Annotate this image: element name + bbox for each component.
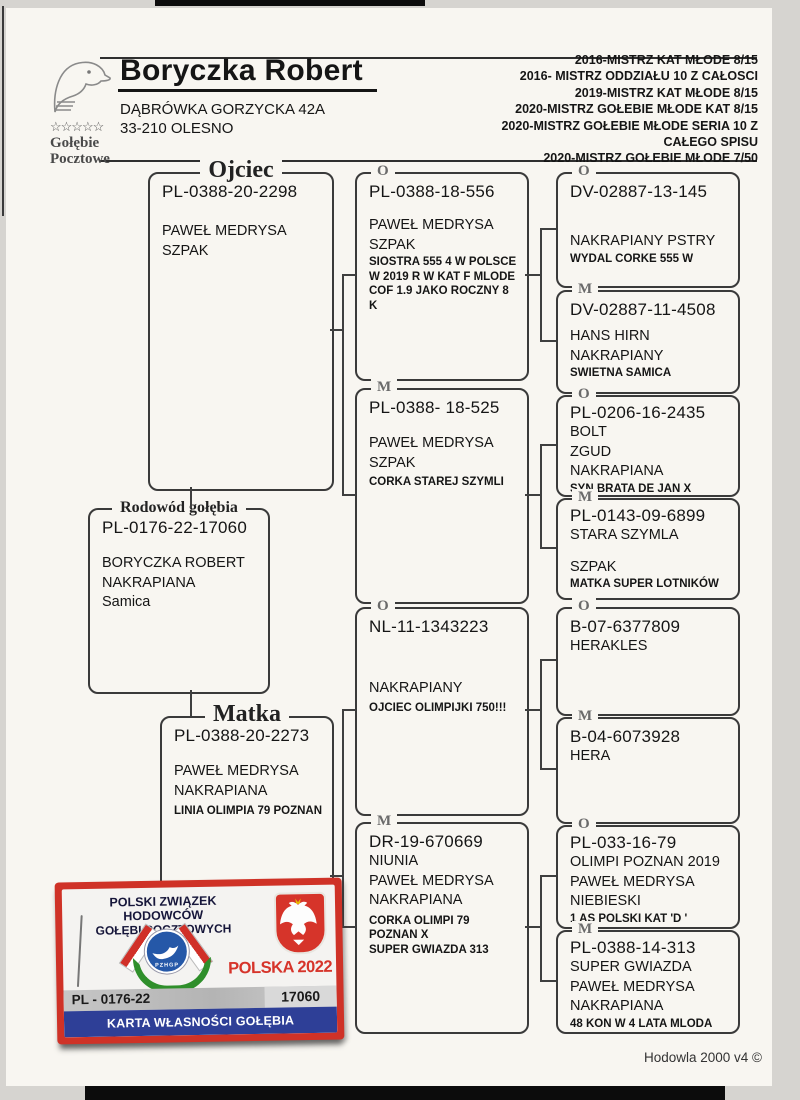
pedigree-box-gen3-6: M B-04-6073928 HERA [556,717,740,824]
dam-label: M [572,281,598,298]
achievement-line: 2016-MISTRZ KAT MŁODE 8/15 [501,52,758,68]
bird-name-line: NIEBIESKI [570,892,730,912]
bird-note-line: LINIA OLIMPIA 79 POZNAN [174,804,324,819]
bird-note-line: OJCIEC OLIMPIJKI 750!!! [369,701,519,716]
bird-name-line: PAWEŁ MEDRYSA [570,978,730,998]
bird-name-line: NAKRAPIANA [570,462,730,482]
bird-name-line: Samica [102,593,260,613]
pzhgp-emblem-icon: PZHGP [117,923,214,989]
connector-line [540,980,556,982]
club-logo: ☆☆☆☆☆ Gołębie Pocztowe [48,58,126,167]
sire-label: O [371,163,395,180]
connector-line [525,926,540,928]
pedigree-box-gen2-4: M DR-19-670669 NIUNIA PAWEŁ MEDRYSA NAKR… [355,822,529,1034]
bird-name-line: PAWEŁ MEDRYSA [369,216,519,236]
connector-line [540,444,542,547]
bird-note-line: SIOSTRA 555 4 W POLSCE [369,255,519,270]
connector-line [525,709,540,711]
connector-line [540,875,556,877]
logo-word-1: Gołębie [50,135,126,151]
bird-name-line: OLIMPI POZNAN 2019 [570,853,730,873]
achievement-line: 2019-MISTRZ KAT MŁODE 8/15 [501,85,758,101]
bird-name-line: HANS HIRN [570,327,730,347]
connector-line [342,709,356,711]
sire-label: O [572,598,596,615]
connector-line [525,494,540,496]
ring-number: PL-0176-22-17060 [102,518,260,538]
ring-number: PL-0388-14-313 [570,938,730,958]
bird-name-line: NAKRAPIANY PSTRY [570,232,730,252]
bird-name-line: BORYCZKA ROBERT [102,554,260,574]
emblem-text: PZHGP [147,962,187,969]
mother-title-label: Matka [205,701,289,727]
ring-number: B-07-6377809 [570,617,730,637]
scan-artifact-left-edge [2,6,4,216]
sire-label: O [371,598,395,615]
connector-line [540,340,556,342]
dam-label: M [572,921,598,938]
om-label: M [371,813,397,829]
sire-label: O [572,816,596,833]
sire-label: O [572,386,596,403]
father-title-label: Ojciec [200,157,281,183]
dam-label: M [572,489,598,506]
ring-number: B-04-6073928 [570,727,730,747]
software-credit: Hodowla 2000 v4 © [644,1050,762,1065]
connector-line [540,875,542,980]
bird-name-line: HERAKLES [570,637,730,657]
bird-name-line: HERA [570,747,730,767]
ring-number: PL-0388-20-2273 [174,726,324,746]
pedigree-box-gen3-8: M PL-0388-14-313 SUPER GWIAZDA PAWEŁ MED… [556,930,740,1034]
dam-label: M [572,708,598,725]
bird-name-line: PAWEŁ MEDRYSA [174,762,324,782]
subject-box-title: Rodowód gołębia [90,499,268,517]
bird-name-line: SZPAK [369,454,519,474]
connector-line [190,487,192,508]
ownership-card: POLSKI ZWIĄZEK HODOWCÓW GOŁĘBI POCZTOWYC… [55,878,345,1045]
bird-name-line: ZGUD [570,443,730,463]
bird-note-line: 48 KON W 4 LATA MLODA [570,1017,730,1032]
breeder-address: DĄBRÓWKA GORZYCKA 42A 33-210 OLESNO [120,100,325,138]
bird-name-line: BOLT [570,423,730,443]
bird-name-line: PAWEŁ MEDRYSA [369,434,519,454]
pedigree-box-gen3-4: M PL-0143-09-6899 STARA SZYMLA SZPAK MAT… [556,498,740,600]
connector-line [540,659,542,768]
mother-box-title: Matka [162,701,332,728]
ring-number: DV-02887-11-4508 [570,300,730,320]
dove-badge-icon: PZHGP [144,929,189,974]
ring-number: DR-19-670669 [369,832,519,852]
ring-number: PL-0143-09-6899 [570,506,730,526]
om-label: O [572,816,596,832]
address-line-1: DĄBRÓWKA GORZYCKA 42A [120,100,325,119]
bird-name-line: NIUNIA [369,852,519,872]
bird-note-line: WYDAL CORKE 555 W [570,252,730,267]
ring-number: PL-033-16-79 [570,833,730,853]
father-box-title: Ojciec [150,157,332,184]
pedigree-box-father: Ojciec PL-0388-20-2298 PAWEŁ MEDRYSA SZP… [148,172,334,491]
dam-label: M [371,379,397,396]
bird-note-line: COF 1.9 JAKO ROCZNY 8 K [369,284,519,313]
pedigree-box-subject: Rodowód gołębia PL-0176-22-17060 BORYCZK… [88,508,270,694]
stars-icon: ☆☆☆☆☆ [50,119,126,135]
om-label: O [371,163,395,179]
bird-name-line: PAWEŁ MEDRYSA [369,872,519,892]
connector-line [342,709,344,926]
om-label: M [572,708,598,724]
bird-name-line: SZPAK [570,558,730,578]
bird-name-line: SZPAK [162,242,324,262]
om-label: O [572,386,596,402]
bird-name-line: SZPAK [369,236,519,256]
scan-artifact-bottom [85,1086,725,1100]
ring-number: PL-0388-20-2298 [162,182,324,202]
connector-line [540,547,556,549]
bird-name-line: PAWEŁ MEDRYSA [570,873,730,893]
pedigree-box-gen3-7: O PL-033-16-79 OLIMPI POZNAN 2019 PAWEŁ … [556,825,740,929]
ownership-card-inner: POLSKI ZWIĄZEK HODOWCÓW GOŁĘBI POCZTOWYC… [62,885,338,1038]
connector-line [342,274,344,494]
ring-serial: 17060 [264,986,336,1008]
bird-name-line: NAKRAPIANA [570,997,730,1017]
bird-name-line: NAKRAPIANY [570,347,730,367]
bird-name-line: NAKRAPIANY [369,679,519,699]
scanned-sheet: ☆☆☆☆☆ Gołębie Pocztowe Boryczka Robert D… [6,8,772,1086]
dam-label: M [371,813,397,830]
bird-note-line: CORKA STAREJ SZYMLI [369,475,519,490]
country-year: POLSKA 2022 [228,958,332,979]
om-label: M [572,489,598,505]
card-org-line-1: POLSKI ZWIĄZEK HODOWCÓW [68,893,258,924]
connector-line [190,690,192,716]
connector-line [342,494,356,496]
ring-number: PL-0206-16-2435 [570,403,730,423]
bird-note-line: CORKA OLIMPI 79 POZNAN X [369,914,519,943]
bird-name-line: NAKRAPIANA [102,574,260,594]
om-label: O [572,598,596,614]
bird-name-line: NAKRAPIANA [369,891,519,911]
om-label: M [371,379,397,395]
breeder-name: Boryczka Robert [118,54,377,92]
ring-number: PL-0388-18-556 [369,182,519,202]
pedigree-box-gen3-5: O B-07-6377809 HERAKLES [556,607,740,716]
pedigree-box-gen2-2: M PL-0388- 18-525 PAWEŁ MEDRYSA SZPAK CO… [355,388,529,604]
pedigree-box-gen3-3: O PL-0206-16-2435 BOLT ZGUD NAKRAPIANA S… [556,395,740,497]
bird-note-line: SWIETNA SAMICA [570,366,730,381]
bird-note-line: SUPER GWIAZDA 313 [369,943,519,958]
connector-line [540,228,556,230]
sire-label: O [572,163,596,180]
address-line-2: 33-210 OLESNO [120,119,325,138]
achievement-line: 2016- MISTRZ ODDZIAŁU 10 Z CAŁOSCI [501,68,758,84]
pedigree-box-gen2-1: O PL-0388-18-556 PAWEŁ MEDRYSA SZPAK SIO… [355,172,529,381]
om-label: M [572,921,598,937]
scan-artifact-top [155,0,425,6]
polish-eagle-icon [274,892,327,955]
connector-line [540,768,556,770]
achievement-line: CAŁEGO SPISU [501,134,758,150]
bird-name-line: NAKRAPIANA [174,782,324,802]
bird-name-line: STARA SZYMLA [570,526,730,546]
pedigree-box-gen3-1: O DV-02887-13-145 NAKRAPIANY PSTRY WYDAL… [556,172,740,288]
bird-name-line: SUPER GWIAZDA [570,958,730,978]
pedigree-box-gen2-3: O NL-11-1343223 NAKRAPIANY OJCIEC OLIMPI… [355,607,529,816]
om-label: O [572,163,596,179]
connector-line [540,444,556,446]
om-label: M [572,281,598,297]
card-title-strip: KARTA WŁASNOŚCI GOŁĘBIA POCZTOWEGO [64,1007,337,1038]
connector-line [342,274,356,276]
bird-note-line: MATKA SUPER LOTNIKÓW [570,577,730,592]
logo-word-2: Pocztowe [50,151,126,167]
connector-line [540,228,542,340]
achievement-line: 2020-MISTRZ GOŁEBIE MŁODE KAT 8/15 [501,101,758,117]
subject-title-label: Rodowód gołębia [112,499,246,516]
ring-number: DV-02887-13-145 [570,182,730,202]
bird-note-line: W 2019 R W KAT F MLODE [369,270,519,285]
om-label: O [371,598,395,614]
achievement-line: 2020-MISTRZ GOŁEBIE MŁODE SERIA 10 Z [501,118,758,134]
achievement-line: 2020-MISTRZ GOŁEBIE MŁODE 7/50 [501,150,758,166]
pigeon-head-icon [48,58,114,114]
bird-name-line: PAWEŁ MEDRYSA [162,222,324,242]
connector-line [342,926,356,928]
achievements-list: 2016-MISTRZ KAT MŁODE 8/15 2016- MISTRZ … [501,52,758,167]
ring-number: PL-0388- 18-525 [369,398,519,418]
pedigree-box-gen3-2: M DV-02887-11-4508 HANS HIRN NAKRAPIANY … [556,290,740,394]
connector-line [525,274,540,276]
ring-number: NL-11-1343223 [369,617,519,637]
connector-line [540,659,556,661]
ring-prefix: PL - 0176-22 [72,991,151,1007]
